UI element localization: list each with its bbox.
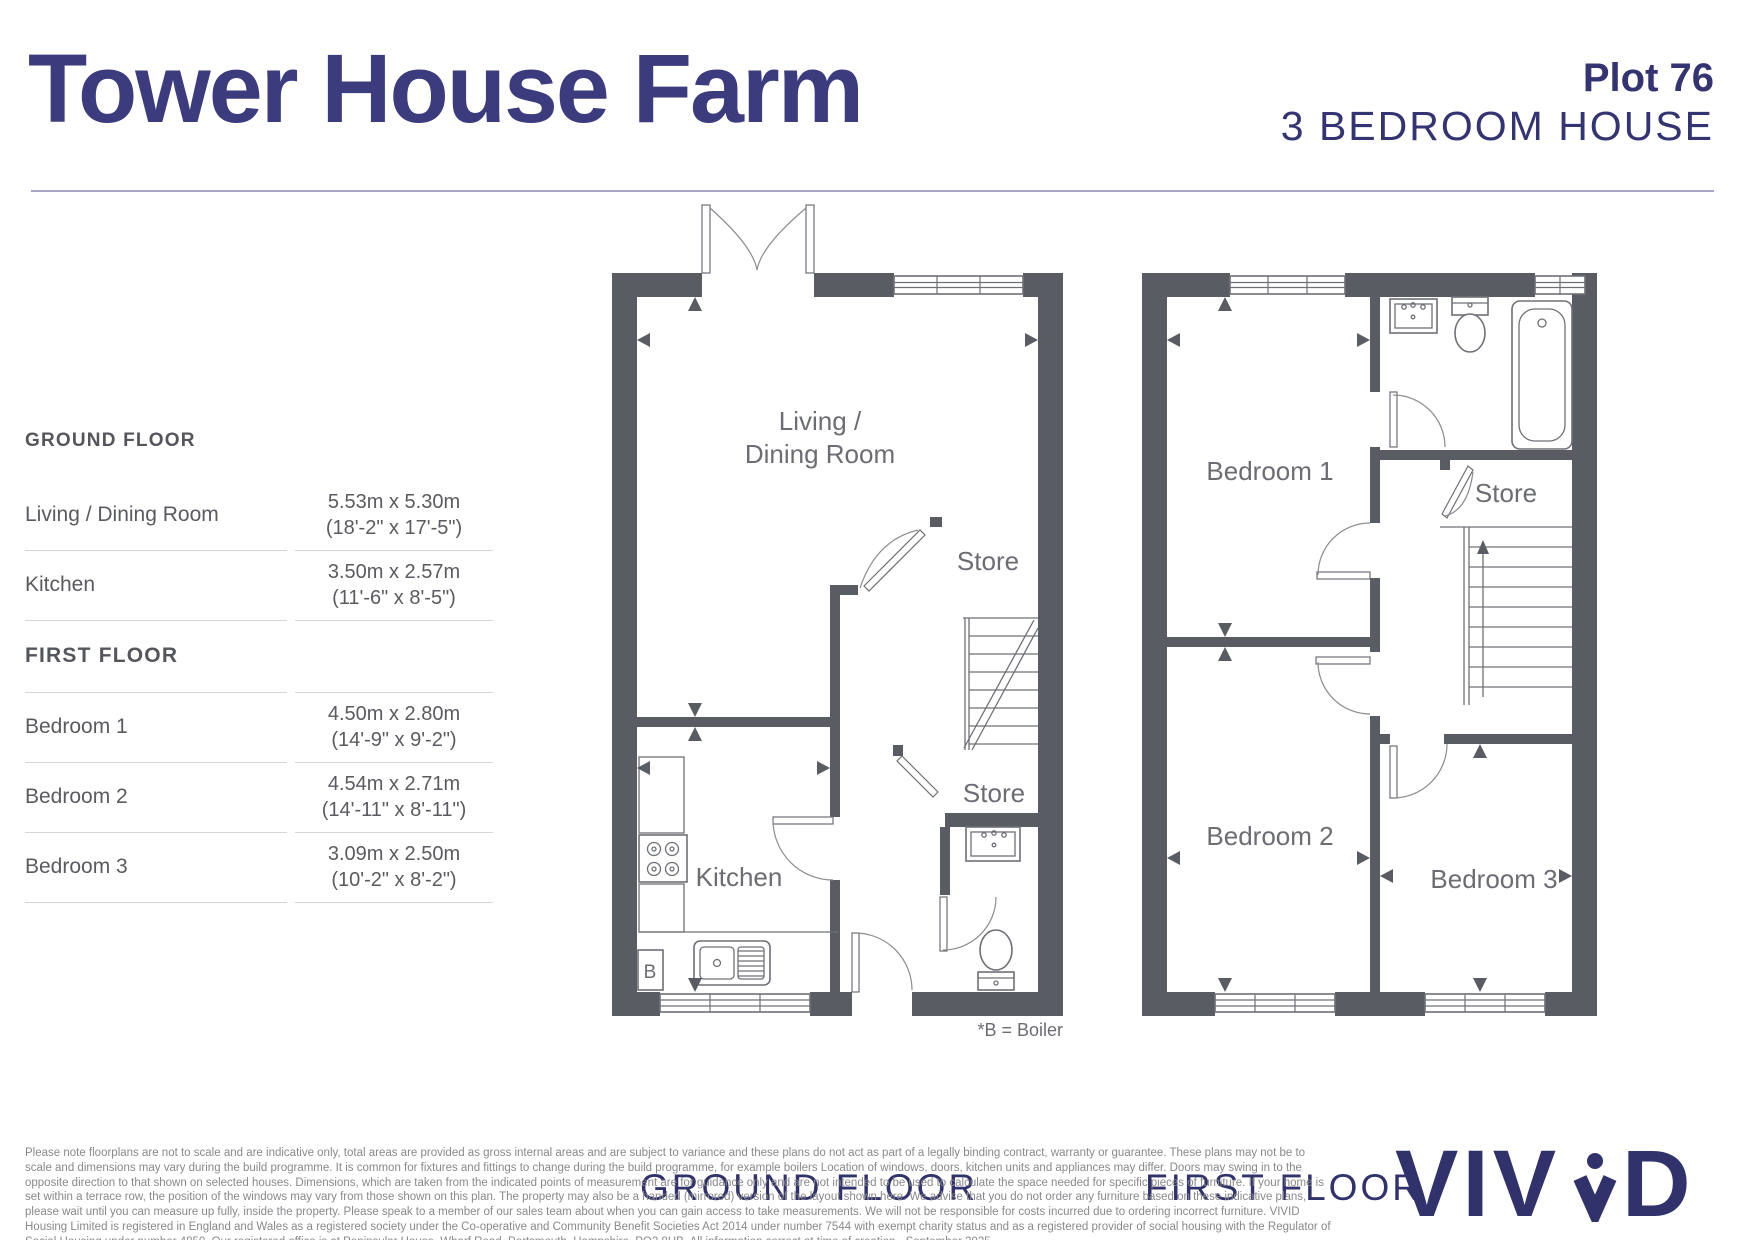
floorplans-drawing: B xyxy=(0,0,1755,1240)
legal-disclaimer: Please note floorplans are not to scale … xyxy=(25,1146,1335,1240)
bedroom3-door xyxy=(1390,744,1447,798)
window xyxy=(660,994,810,1012)
store-label: Store xyxy=(1475,478,1537,508)
bathtub-icon xyxy=(1512,301,1572,449)
staircase xyxy=(1440,527,1572,705)
window xyxy=(894,276,1023,294)
boiler-note: *B = Boiler xyxy=(977,1020,1063,1040)
bedroom3-label: Bedroom 3 xyxy=(1430,864,1557,894)
kitchen-label: Kitchen xyxy=(696,862,783,892)
first-floor-plan: Bedroom 1 Bedroom 2 Bedroom 3 Store FIRS… xyxy=(1142,273,1597,1208)
ground-floor-plan: B xyxy=(612,205,1063,1208)
bathroom-door xyxy=(1390,392,1445,447)
vivid-logo: VIV D xyxy=(1395,1150,1715,1222)
store-door xyxy=(1442,466,1473,518)
floorplan-sheet: Tower House Farm Plot 76 3 BEDROOM HOUSE… xyxy=(0,0,1755,1240)
window xyxy=(1535,276,1585,294)
sink-icon xyxy=(694,941,770,985)
window xyxy=(1215,994,1335,1012)
basin-icon xyxy=(1390,299,1437,333)
window xyxy=(1425,994,1545,1012)
basin-icon xyxy=(966,827,1020,861)
living-dining-label-line2: Dining Room xyxy=(745,439,895,469)
window xyxy=(1230,276,1345,294)
understairs-store-door xyxy=(897,756,938,797)
boiler-label: B xyxy=(644,962,657,983)
boiler-icon: B xyxy=(638,950,663,990)
stylized-i-icon xyxy=(1580,1153,1610,1212)
toilet-icon xyxy=(1452,297,1488,352)
store-label-understairs: Store xyxy=(963,778,1025,808)
logo-text-viv: VIV xyxy=(1395,1150,1560,1222)
bedroom2-door xyxy=(1316,657,1370,714)
logo-text-d: D xyxy=(1622,1150,1695,1222)
bedroom1-door xyxy=(1317,523,1370,579)
french-doors xyxy=(702,205,814,273)
living-room-door xyxy=(860,530,925,591)
staircase xyxy=(963,618,1038,750)
store-label-upper: Store xyxy=(957,546,1019,576)
living-dining-label-line1: Living / xyxy=(779,406,862,436)
toilet-icon xyxy=(978,930,1014,990)
bedroom1-label: Bedroom 1 xyxy=(1206,456,1333,486)
front-door xyxy=(852,933,912,992)
bedroom2-label: Bedroom 2 xyxy=(1206,821,1333,851)
stove-icon xyxy=(639,835,687,882)
